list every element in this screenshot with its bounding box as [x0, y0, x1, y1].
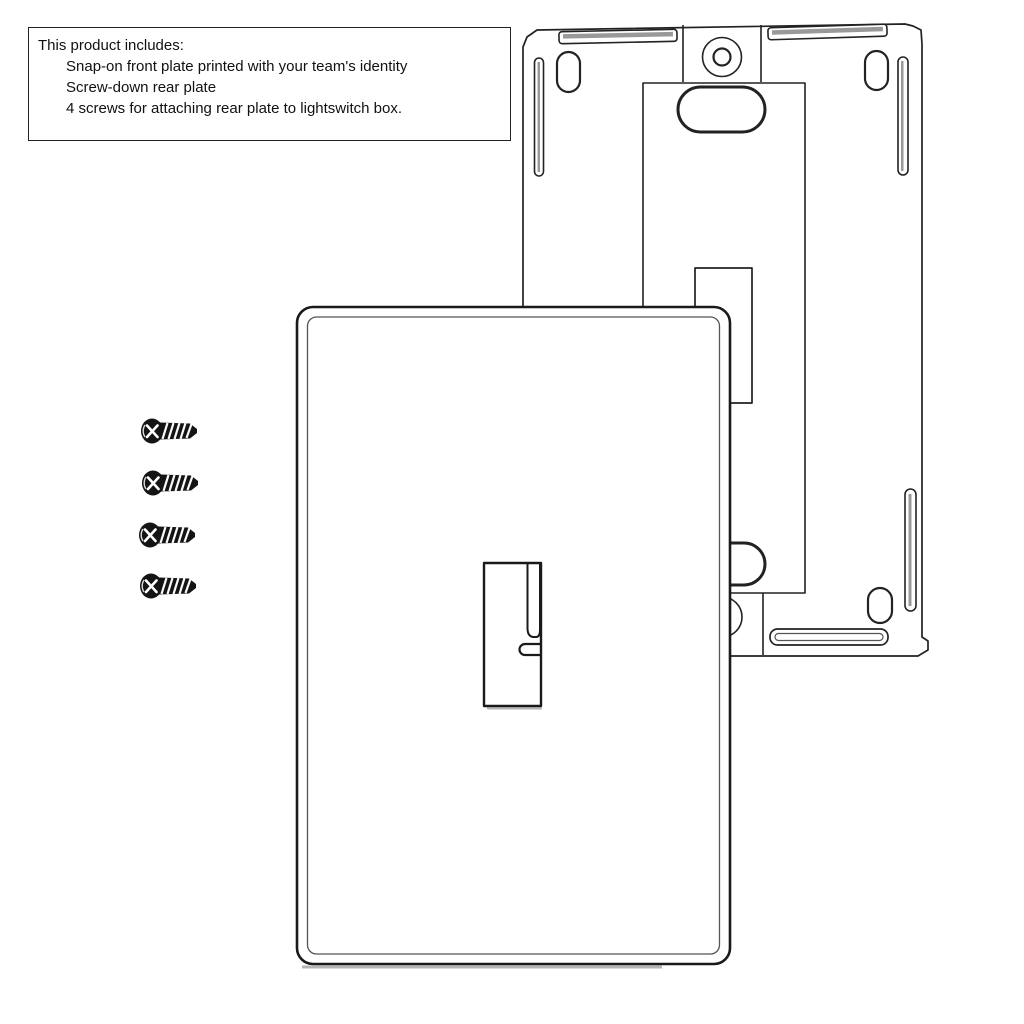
info-box-title: This product includes: — [38, 35, 505, 56]
screw-illustration — [140, 574, 196, 599]
screw-illustration — [141, 419, 197, 444]
info-box-item-rear-plate: Screw-down rear plate — [38, 77, 505, 98]
toggle-opening — [484, 563, 542, 709]
left-side-slot — [535, 58, 544, 176]
product-diagram-canvas: This product includes: Snap-on front pla… — [0, 0, 1024, 1024]
info-box-item-screws: 4 screws for attaching rear plate to lig… — [38, 98, 505, 119]
diagram-svg — [0, 0, 1024, 1024]
screws — [139, 419, 198, 599]
top-left-mounting-slot — [559, 29, 677, 43]
screw-illustration — [139, 523, 195, 548]
info-box: This product includes: Snap-on front pla… — [28, 27, 511, 141]
bottom-mounting-slot — [770, 629, 888, 645]
right-side-slot-lower — [905, 489, 916, 611]
info-box-item-front-plate: Snap-on front plate printed with your te… — [38, 56, 505, 77]
front-plate — [297, 307, 730, 967]
screw-illustration — [142, 471, 198, 496]
right-side-slot-upper — [898, 57, 908, 175]
